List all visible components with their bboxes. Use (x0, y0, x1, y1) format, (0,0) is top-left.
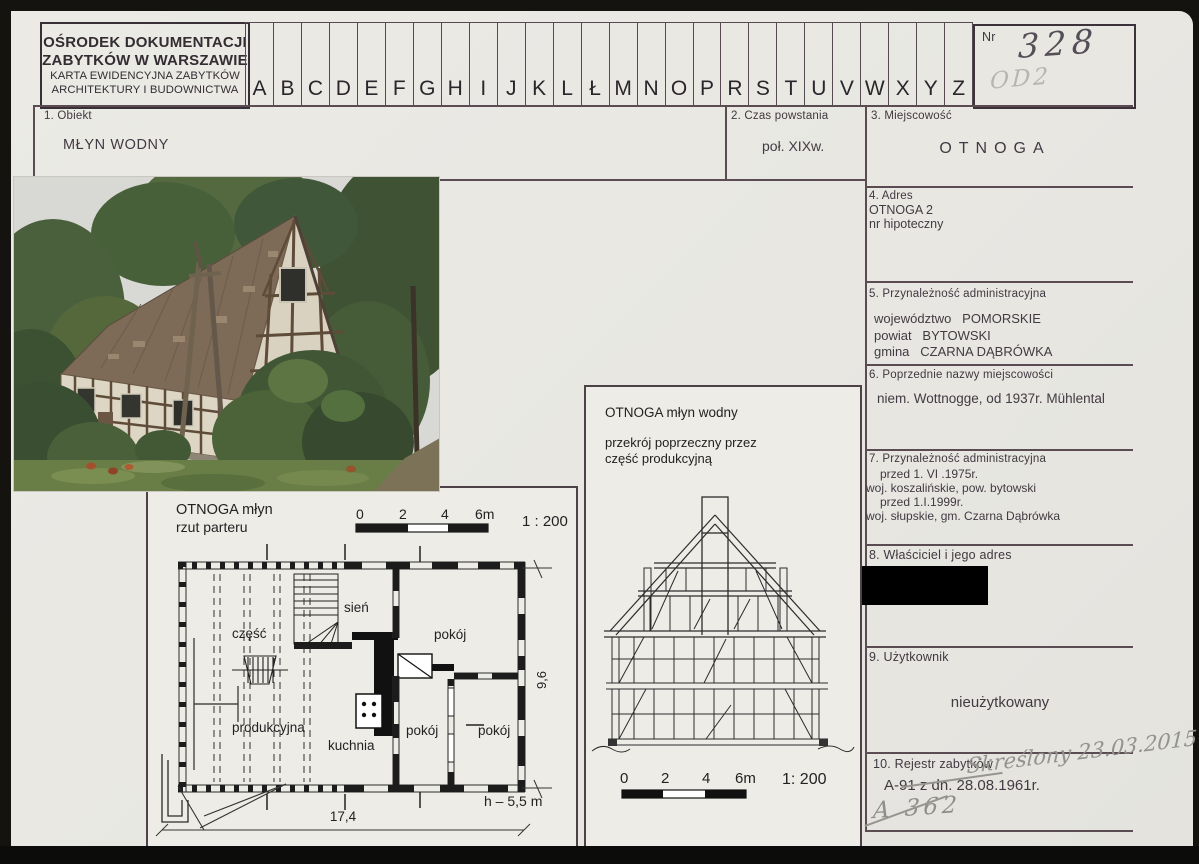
plan-dashed-lines (214, 574, 310, 782)
institution-header: OŚRODEK DOKUMENTACJI ZABYTKÓW W WARSZAWI… (40, 22, 250, 109)
table-rule (865, 281, 1133, 283)
section-scale-tick: 0 (620, 770, 628, 787)
section-subtitle-line1: przekrój poprzeczny przez (605, 435, 757, 450)
cross-section-drawing: OTNOGA młyn wodny przekrój poprzeczny pr… (586, 387, 860, 851)
section-chimney (702, 497, 728, 635)
room-label-kuchnia: kuchnia (328, 738, 375, 753)
plan-inner-walls (194, 638, 238, 770)
section-footing (819, 739, 828, 746)
field-przynaleznosc-hist-label: 7. Przynależność administracyjna (869, 453, 1046, 465)
alphabet-cell: A (245, 23, 273, 106)
alphabet-cell: B (273, 23, 301, 106)
scan-edge-bottom (0, 846, 1199, 864)
alphabet-cell: Ł (581, 23, 609, 106)
field-czas-label: 2. Czas powstania (731, 110, 828, 122)
table-rule (865, 364, 1133, 366)
room-label-czesc: część (232, 626, 267, 641)
alphabet-cell: Y (916, 23, 944, 106)
field-przynaleznosc-line2: powiat BYTOWSKI (874, 328, 991, 343)
field-czas-value: poł. XIXw. (762, 138, 824, 154)
section-ground-line (818, 746, 854, 752)
plan-height-note: h – 5,5 m (484, 793, 542, 809)
plan-dim-width: 17,4 (330, 809, 357, 824)
section-scale-bar-segment (705, 790, 746, 798)
plan-scale-tick: 0 (356, 506, 364, 522)
field-uzytkownik-label: 9. Użytkownik (869, 650, 949, 664)
room-label-pokoj-a: pokój (434, 627, 466, 642)
section-subtitle-line2: część produkcyjną (605, 451, 713, 466)
section-attic-framing (644, 568, 787, 631)
alphabet-cell: C (301, 23, 329, 106)
alphabet-cell: M (609, 23, 637, 106)
table-rule (725, 105, 727, 180)
section-title: OTNOGA młyn wodny (605, 405, 738, 420)
field-miejscowosc-label: 3. Miejscowość (871, 110, 952, 122)
card-type-line2: ARCHITEKTURY I BUDOWNICTWA (42, 84, 248, 98)
alphabet-cell: L (553, 23, 581, 106)
section-lower-storey (608, 689, 828, 745)
site-photo (13, 176, 440, 492)
nr-value-handwritten: 328 (1017, 21, 1099, 66)
section-scale-tick: 2 (661, 770, 669, 787)
field-przynaleznosc-hist-line3: przed 1.I.1999r. (880, 495, 963, 509)
room-label-produkcyjna: produkcyjna (232, 720, 305, 735)
alphabet-cell: D (329, 23, 357, 106)
field-przynaleznosc-line3: gmina CZARNA DĄBRÓWKA (874, 344, 1052, 359)
alphabet-cell: S (748, 23, 776, 106)
nr-pencil-note: OD2 (989, 63, 1051, 95)
field-przynaleznosc-hist-line2: woj. koszalińskie, pow. bytowski (866, 481, 1036, 495)
plan-scale-tick: 2 (399, 506, 407, 522)
alphabet-index-row: A B C D E F G H I J K L Ł M N O P R S T … (245, 22, 973, 106)
alphabet-cell: V (832, 23, 860, 106)
field-uzytkownik-value: nieużytkowany (870, 694, 1130, 711)
table-rule (865, 646, 1133, 648)
org-name-line1: OŚRODEK DOKUMENTACJI (42, 34, 248, 52)
field-adres-line2: nr hipoteczny (869, 217, 943, 231)
field-obiekt-label: 1. Obiekt (44, 110, 92, 122)
nr-label: Nr (982, 30, 996, 44)
field-adres-label: 4. Adres (869, 190, 913, 202)
floor-plan-drawing: OTNOGA młyn rzut parteru 0 2 4 6m 1 : 20… (148, 488, 576, 852)
alphabet-cell: E (357, 23, 385, 106)
section-scale-ratio: 1: 200 (782, 771, 827, 788)
room-label-pokoj-b: pokój (406, 723, 438, 738)
table-rule (865, 449, 1133, 451)
field-miejscowosc-value: OTNOGA (870, 140, 1120, 158)
alphabet-cell: G (413, 23, 441, 106)
table-rule (865, 186, 1133, 188)
alphabet-cell: K (525, 23, 553, 106)
alphabet-cell: N (637, 23, 665, 106)
section-scale-tick: 6m (735, 770, 756, 787)
field-przynaleznosc-line1: województwo POMORSKIE (874, 311, 1041, 326)
section-upper-storey (606, 637, 828, 689)
alphabet-cell: H (441, 23, 469, 106)
plan-scale-tick: 6m (475, 506, 494, 522)
alphabet-cell: Z (944, 23, 972, 106)
room-label-sien: sień (344, 600, 369, 615)
section-scale-bar-segment (622, 790, 663, 798)
field-wlasciciel-label: 8. Właściciel i jego adres (869, 548, 1012, 562)
plan-scale-bar-segment (356, 524, 408, 532)
plan-stair-landing (294, 642, 352, 649)
card-type-line1: KARTA EWIDENCYJNA ZABYTKÓW (42, 70, 248, 84)
table-rule (33, 105, 35, 180)
table-rule (865, 544, 1133, 546)
section-scale-tick: 4 (702, 770, 710, 787)
plan-chimney-block (352, 632, 454, 736)
alphabet-cell: X (888, 23, 916, 106)
plan-dim-depth: 9,6 (534, 671, 549, 689)
floor-plan-panel: OTNOGA młyn rzut parteru 0 2 4 6m 1 : 20… (146, 486, 578, 854)
scanned-heritage-card: OŚRODEK DOKUMENTACJI ZABYTKÓW W WARSZAWI… (0, 0, 1199, 864)
alphabet-cell: T (776, 23, 804, 106)
plan-title-line1: OTNOGA młyn (176, 502, 273, 518)
plan-scale-ratio: 1 : 200 (522, 513, 568, 530)
field-przynaleznosc-hist-line4: woj. słupskie, gm. Czarna Dąbrówka (866, 509, 1060, 523)
alphabet-cell: W (860, 23, 888, 106)
room-label-pokoj-c: pokój (478, 723, 510, 738)
field-adres-line1: OTNOGA 2 (869, 203, 933, 217)
plan-title-line2: rzut parteru (176, 519, 248, 535)
section-ground-line (592, 746, 630, 752)
alphabet-cell: U (804, 23, 832, 106)
plan-scale-bar-segment (448, 524, 488, 532)
alphabet-cell: I (469, 23, 497, 106)
alphabet-cell: P (693, 23, 721, 106)
field-obiekt-value: MŁYN WODNY (63, 137, 169, 153)
section-footing (608, 739, 617, 746)
alphabet-cell: J (497, 23, 525, 106)
alphabet-cell: O (665, 23, 693, 106)
alphabet-cell: R (720, 23, 748, 106)
redaction-box (861, 566, 988, 605)
cross-section-panel: OTNOGA młyn wodny przekrój poprzeczny pr… (584, 385, 862, 853)
field-przynaleznosc-label: 5. Przynależność administracyjna (869, 288, 1046, 300)
field-przynaleznosc-hist-line1: przed 1. VI .1975r. (880, 467, 978, 481)
alphabet-cell: F (385, 23, 413, 106)
table-rule (865, 830, 1133, 832)
plan-stairs (294, 574, 338, 647)
field-poprzednie-nazwy-label: 6. Poprzednie nazwy miejscowości (869, 369, 1053, 381)
table-rule (865, 105, 867, 831)
plan-scale-tick: 4 (441, 506, 449, 522)
table-rule (33, 105, 1133, 107)
field-poprzednie-nazwy-value: niem. Wottnogge, od 1937r. Mühlental (877, 391, 1105, 406)
org-name-line2: ZABYTKÓW W WARSZAWIE (42, 52, 248, 70)
